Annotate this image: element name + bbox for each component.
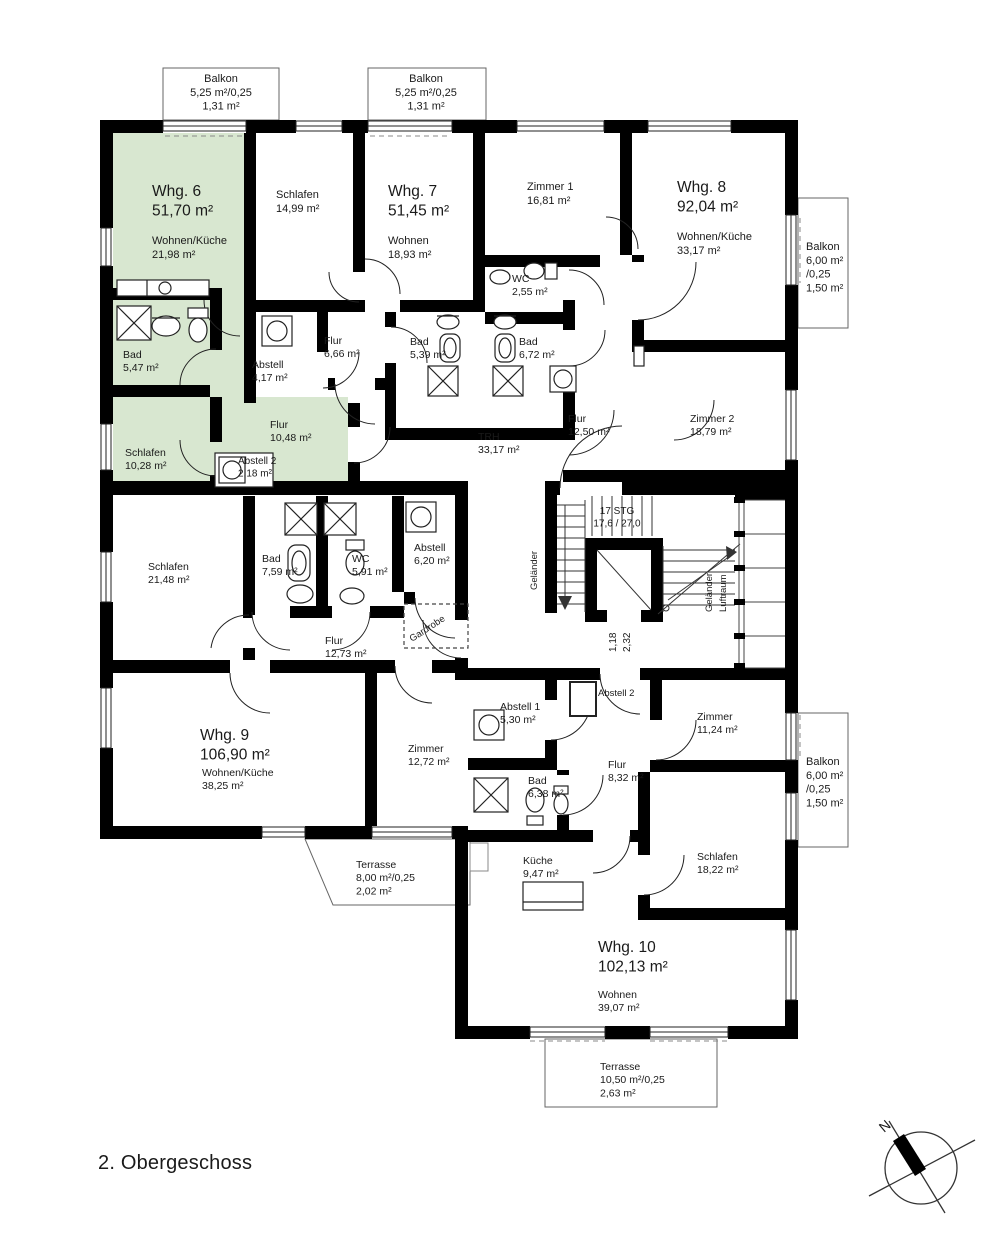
whg8-flur-label: Flur12,50 m² [568, 413, 610, 438]
whg9-schlafen-label: Schlafen21,48 m² [148, 561, 190, 586]
window-right-2 [786, 390, 796, 460]
abstell2-whg10-box [570, 682, 596, 716]
gelaender-left-label: Geländer [529, 551, 540, 590]
window-right-1 [786, 215, 796, 285]
elevator-dim-232: 2,32 [622, 632, 633, 652]
whg10-kueche-label: Küche9,47 m² [523, 855, 559, 880]
whg7-flur-label: Flur6,66 m² [324, 335, 360, 360]
door-whg10-kueche [593, 836, 630, 873]
balkon-right-bottom-label: Balkon6,00 m²/0,251,50 m² [806, 756, 844, 809]
sink-whg9-wc [340, 588, 364, 604]
door-whg10-zimmer [656, 720, 696, 760]
window-bottom-left-1 [262, 827, 305, 837]
balkon-top-left-label: Balkon5,25 m²/0,251,31 m² [190, 73, 252, 113]
sink-whg9-bad [287, 585, 313, 603]
window-bottom-left-2 [372, 827, 452, 837]
whg10-abstell2-label: Abstell 2 [598, 688, 634, 699]
balkon-right-top-label: Balkon6,00 m²/0,251,50 m² [806, 241, 844, 294]
whg8-title: Whg. 892,04 m² [677, 179, 738, 215]
whg8-zimmer1-label: Zimmer 116,81 m² [527, 181, 573, 207]
shower-whg10-bad [474, 778, 508, 812]
whg9-zimmer-label: Zimmer12,72 m² [408, 743, 450, 768]
door-whg7-schlafen [329, 272, 359, 302]
shower-whg8-bad [493, 366, 523, 396]
whg10-title: Whg. 10102,13 m² [598, 939, 668, 975]
kitchen-counter-whg6 [117, 280, 209, 296]
balkon-top-mid-label: Balkon5,25 m²/0,251,31 m² [395, 73, 457, 113]
window-right-3 [786, 713, 796, 760]
terrace-step-whg10 [470, 843, 488, 871]
window-top-4 [517, 121, 604, 131]
whg7-title: Whg. 751,45 m² [388, 183, 449, 219]
door-whg8-wohnen [638, 262, 696, 320]
whg10-wohnen-label: Wohnen39,07 m² [598, 989, 640, 1014]
door-whg10-bad [563, 775, 603, 815]
shower-whg6 [117, 306, 151, 340]
niche-zimmer2 [634, 346, 644, 366]
door-whg9-zimmer [395, 666, 432, 703]
door-whg7-wohnen [365, 259, 400, 294]
window-left-4 [101, 688, 111, 748]
tub-whg8-bad [495, 334, 515, 362]
sink-whg8-wc [490, 270, 510, 284]
terrasse-whg9-label: Terrasse8,00 m²/0,252,02 m² [356, 859, 415, 897]
toilet-whg6 [188, 308, 208, 342]
window-whg10-bottom-2 [650, 1027, 728, 1037]
window-top-3 [368, 121, 452, 131]
terrasse-whg10-label: Terrasse10,50 m²/0,252,63 m² [600, 1061, 665, 1099]
door-whg8-wc [569, 270, 604, 305]
washer-whg9-abstell [406, 502, 436, 532]
door-whg9-schlafen [211, 615, 249, 648]
whg7-schlafen-label: Schlafen14,99 m² [276, 189, 320, 215]
whg8-bad-label: Bad6,72 m² [519, 336, 555, 361]
gelaender-right-label: Geländer [704, 573, 715, 612]
whg10-schlafen-label: Schlafen18,22 m² [697, 851, 739, 876]
door-whg10-schlafen [644, 855, 684, 895]
whg10-zimmer-label: Zimmer11,24 m² [697, 711, 738, 736]
elevator-dim-118: 1,18 [608, 632, 619, 652]
floorplan-page: Balkon5,25 m²/0,251,31 m²Balkon5,25 m²/0… [0, 0, 1000, 1249]
window-left-3 [101, 552, 111, 602]
sink-whg6 [152, 316, 180, 336]
whg10-bad-label: Bad6,38 m² [528, 775, 564, 800]
compass-north-label: N [876, 1117, 894, 1136]
door-whg9-wohnen [230, 673, 270, 713]
floor-title: 2. Obergeschoss [98, 1152, 252, 1175]
whg8-wohnen-kueche-label: Wohnen/Küche33,17 m² [677, 231, 752, 257]
luftraum-label: Luftraum [718, 574, 729, 612]
shower-whg9-bad [285, 503, 317, 535]
whg10-flur-label: Flur8,32 m² [608, 759, 644, 784]
door-whg6-entry [354, 427, 390, 463]
window-left-1 [101, 228, 111, 266]
door-whg9-bad [252, 612, 290, 650]
whg9-title: Whg. 9106,90 m² [200, 727, 270, 763]
whg7-wohnen-label: Wohnen18,93 m² [388, 235, 432, 261]
whg7-abstell-label: Abstell4,17 m² [252, 359, 288, 384]
compass-needle [893, 1134, 926, 1176]
window-left-2 [101, 424, 111, 470]
washer-whg7-abstell [262, 316, 292, 346]
sink-whg7-bad [437, 315, 459, 329]
shower-whg9-wc [324, 503, 356, 535]
whg8-zimmer2-label: Zimmer 218,79 m² [690, 413, 734, 438]
whg9-wc-label: WC5,91 m² [352, 553, 388, 578]
whg9-gardrobe-label: Gardrobe [408, 613, 448, 644]
whg10-abstell1-label: Abstell 15,30 m² [500, 701, 540, 726]
kitchen-counter-whg10 [523, 882, 583, 910]
washer-whg8-bad [550, 366, 576, 392]
whg9-abstell-label: Abstell6,20 m² [414, 542, 450, 567]
sink-whg8-bad [494, 315, 516, 329]
whg6-abstell2-label: Abstell 22,18 m² [238, 456, 277, 480]
door-whg8-bad [569, 330, 605, 366]
window-right-4 [786, 793, 796, 840]
whg9-wohnen-kueche-label: Wohnen/Küche38,25 m² [202, 767, 274, 792]
window-top-2 [296, 121, 342, 131]
shower-whg7-bad [428, 366, 458, 396]
balconies-terraces [163, 68, 848, 1107]
window-top-5 [648, 121, 731, 131]
whg9-flur-label: Flur12,73 m² [325, 635, 367, 660]
window-whg10-bottom-1 [530, 1027, 605, 1037]
stairs-steps-label: 17 STG17,6 / 27,0 [593, 506, 641, 530]
floorplan-drawing: Balkon5,25 m²/0,251,31 m²Balkon5,25 m²/0… [0, 0, 1000, 1249]
window-right-5 [786, 930, 796, 1000]
whg6-schlafen-label: Schlafen10,28 m² [125, 447, 167, 472]
window-top-1 [163, 121, 246, 131]
luftraum-glazing [734, 497, 785, 669]
